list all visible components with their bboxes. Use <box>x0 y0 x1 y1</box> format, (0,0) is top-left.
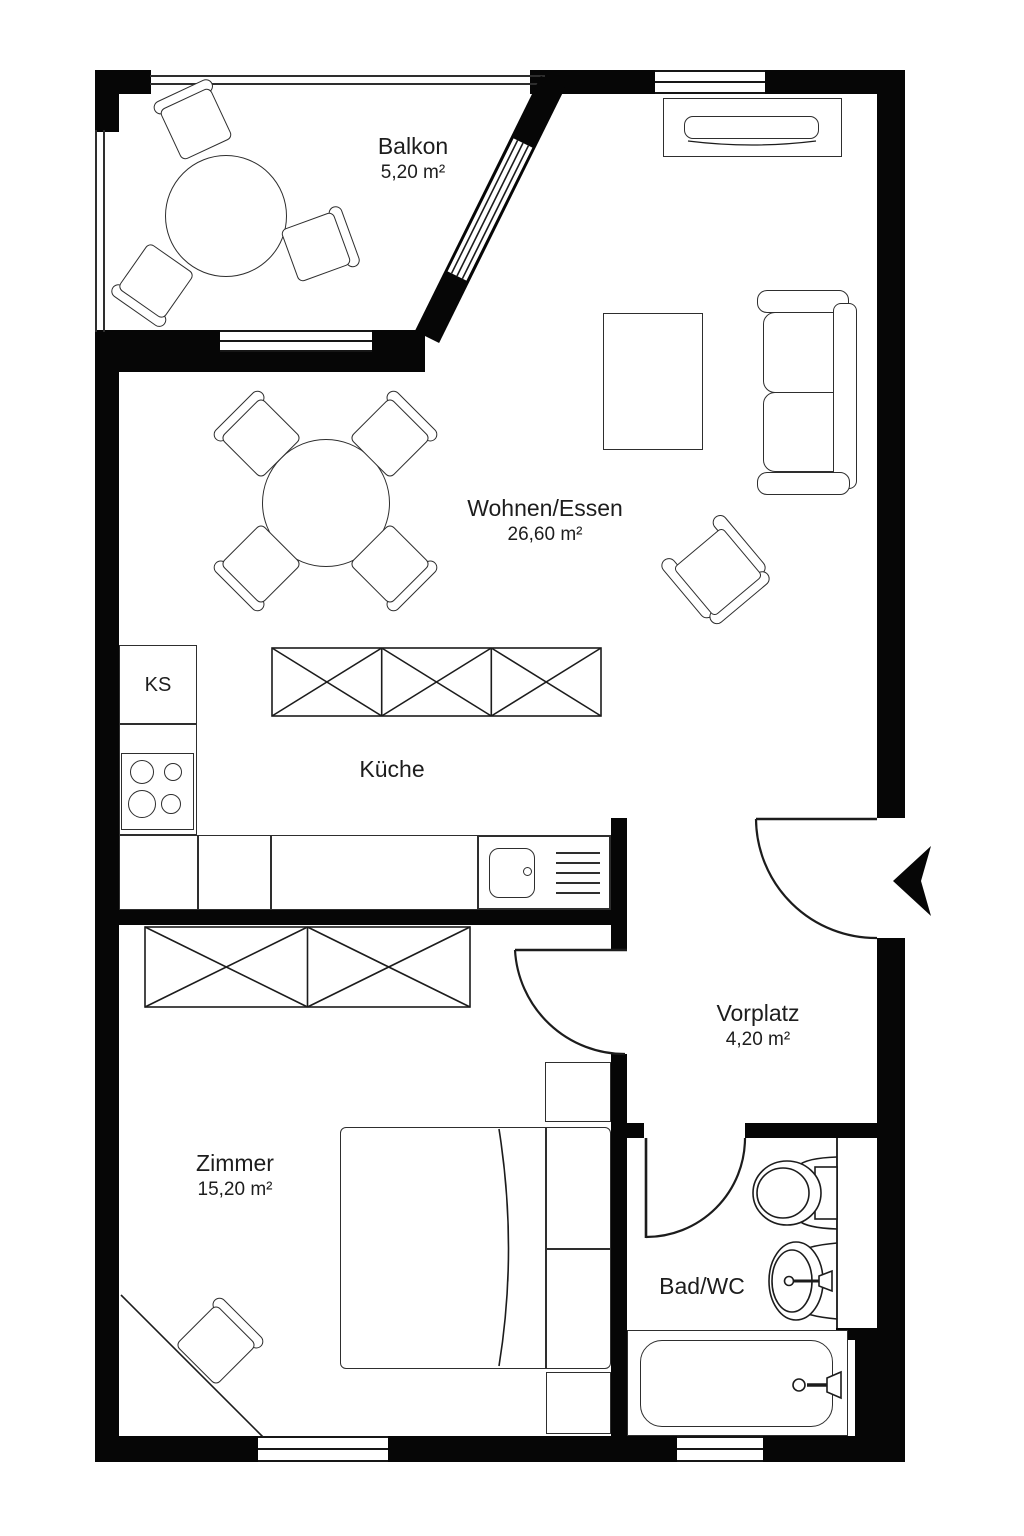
room-name: Küche <box>359 755 424 784</box>
bed-duvet-line <box>499 1129 509 1366</box>
bedroom-door <box>515 950 627 1054</box>
room-label-zimmer: Zimmer 15,20 m² <box>196 1149 274 1201</box>
toilet <box>753 1157 837 1229</box>
room-label-balkon: Balkon 5,20 m² <box>378 132 448 184</box>
sideboard-front-line <box>688 141 816 145</box>
bathroom-sink <box>769 1242 837 1320</box>
room-label-kueche: Küche <box>359 755 424 784</box>
room-label-bad-wc: Bad/WC <box>659 1272 745 1301</box>
bathroom-door <box>646 1138 745 1238</box>
room-name: Bad/WC <box>659 1272 745 1301</box>
balcony-diagonal-wall <box>427 82 553 337</box>
entrance-door <box>756 819 877 938</box>
room-area: 5,20 m² <box>378 161 448 185</box>
room-name: Zimmer <box>196 1149 274 1178</box>
room-area: 4,20 m² <box>716 1028 799 1052</box>
room-name: Wohnen/Essen <box>467 494 623 523</box>
bathtub-tap <box>793 1372 841 1398</box>
wardrobe <box>145 927 470 1007</box>
room-label-vorplatz: Vorplatz 4,20 m² <box>716 999 799 1051</box>
room-name: Vorplatz <box>716 999 799 1028</box>
kitchen-upper-cabinets <box>272 648 601 716</box>
room-area: 15,20 m² <box>196 1178 274 1202</box>
room-name: Balkon <box>378 132 448 161</box>
desk <box>121 1295 263 1437</box>
room-label-wohnen-essen: Wohnen/Essen 26,60 m² <box>467 494 623 546</box>
room-area: 26,60 m² <box>467 523 623 547</box>
entrance-arrow-icon <box>893 846 931 916</box>
plan-linework <box>0 0 1024 1536</box>
floor-plan: KS <box>0 0 1024 1536</box>
